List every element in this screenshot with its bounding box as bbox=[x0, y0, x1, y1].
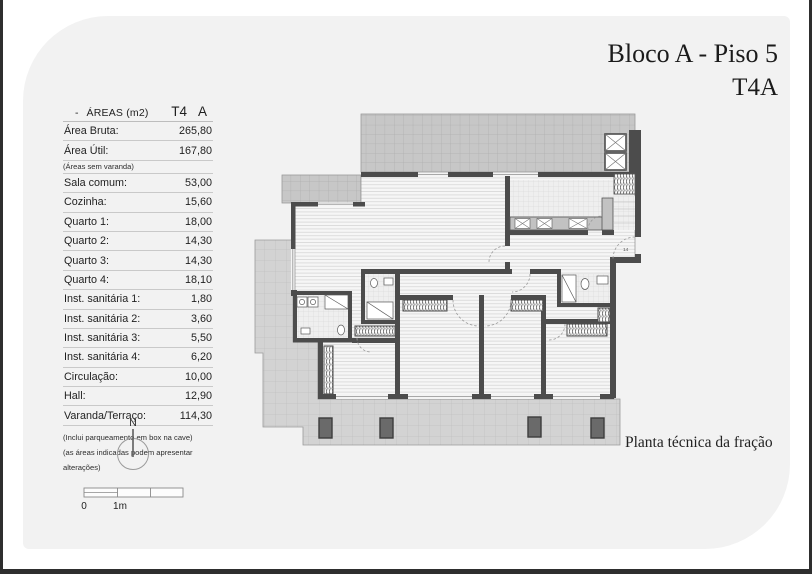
table-row: Circulação:10,00 bbox=[63, 368, 213, 387]
row-label: Inst. sanitária 4: bbox=[63, 351, 140, 363]
table-note-row: (Áreas sem varanda) bbox=[63, 161, 213, 174]
scale-meter-label: 1m bbox=[113, 501, 127, 512]
sheet: Bloco A - Piso 5 T4A - ÁREAS (m2) T4 A Á… bbox=[0, 0, 812, 574]
plan-caption: Planta técnica da fração bbox=[625, 434, 773, 452]
table-row: Inst. sanitária 4:6,20 bbox=[63, 348, 213, 367]
table-row: Sala comum:53,00 bbox=[63, 174, 213, 193]
table-row: Cozinha:15,60 bbox=[63, 193, 213, 212]
table-row: Quarto 2:14,30 bbox=[63, 232, 213, 251]
row-value: 10,00 bbox=[185, 371, 213, 383]
title-block: Bloco A - Piso 5 T4A bbox=[608, 36, 778, 105]
page-title: Bloco A - Piso 5 bbox=[608, 36, 778, 71]
scale-zero-label: 0 bbox=[81, 501, 87, 512]
table-row: Inst. sanitária 3:5,50 bbox=[63, 329, 213, 348]
row-label: Inst. sanitária 1: bbox=[63, 293, 140, 305]
pantry-floor bbox=[614, 196, 635, 230]
header-type: T4 bbox=[171, 104, 187, 119]
table-row: Inst. sanitária 1:1,80 bbox=[63, 290, 213, 309]
row-value: 18,00 bbox=[185, 216, 213, 228]
floor-plan-drawing: 14 bbox=[253, 106, 663, 450]
table-row: Área Útil:167,80 bbox=[63, 141, 213, 160]
table-row: Quarto 4:18,10 bbox=[63, 271, 213, 290]
row-label: Quarto 1: bbox=[63, 216, 109, 228]
row-label: Área Bruta: bbox=[63, 125, 119, 137]
row-value: 53,00 bbox=[185, 177, 213, 189]
table-row: Quarto 3:14,30 bbox=[63, 251, 213, 270]
row-value: 265,80 bbox=[179, 125, 213, 137]
row-value: 167,80 bbox=[179, 145, 213, 157]
row-value: 14,30 bbox=[185, 235, 213, 247]
table-row: Inst. sanitária 2:3,60 bbox=[63, 310, 213, 329]
row-label: Quarto 2: bbox=[63, 235, 109, 247]
row-value: 18,10 bbox=[185, 274, 213, 286]
row-label: Área Útil: bbox=[63, 145, 108, 157]
row-value: 1,80 bbox=[191, 293, 213, 305]
areas-table-header: - ÁREAS (m2) T4 A bbox=[63, 104, 213, 122]
header-dash: - bbox=[75, 107, 79, 119]
page-border-bottom bbox=[0, 569, 812, 574]
row-label: Cozinha: bbox=[63, 196, 107, 208]
scale-bar: 0 1m bbox=[80, 484, 200, 514]
row-label: Hall: bbox=[63, 390, 86, 402]
row-label: Quarto 4: bbox=[63, 274, 109, 286]
row-label: Circulação: bbox=[63, 371, 118, 383]
table-row: Hall:12,90 bbox=[63, 387, 213, 406]
row-label: Inst. sanitária 2: bbox=[63, 313, 140, 325]
row-label: Inst. sanitária 3: bbox=[63, 332, 140, 344]
door-number-label: 14 bbox=[623, 247, 629, 253]
header-label: ÁREAS (m2) bbox=[87, 107, 149, 119]
row-value: 6,20 bbox=[191, 351, 213, 363]
north-label: N bbox=[129, 417, 137, 429]
row-value: 15,60 bbox=[185, 196, 213, 208]
header-fraction: A bbox=[198, 104, 207, 119]
row-value: 12,90 bbox=[185, 390, 213, 402]
row-label: Quarto 3: bbox=[63, 255, 109, 267]
row-value: 14,30 bbox=[185, 255, 213, 267]
north-arrow: N bbox=[103, 414, 163, 474]
row-value: 114,30 bbox=[180, 410, 213, 422]
table-row: Quarto 1:18,00 bbox=[63, 213, 213, 232]
row-label: Sala comum: bbox=[63, 177, 127, 189]
row-value: 5,50 bbox=[191, 332, 213, 344]
fraction-title: T4A bbox=[608, 71, 778, 105]
row-value: 3,60 bbox=[191, 313, 213, 325]
page-border-left bbox=[0, 0, 3, 574]
table-row: Área Bruta:265,80 bbox=[63, 122, 213, 141]
